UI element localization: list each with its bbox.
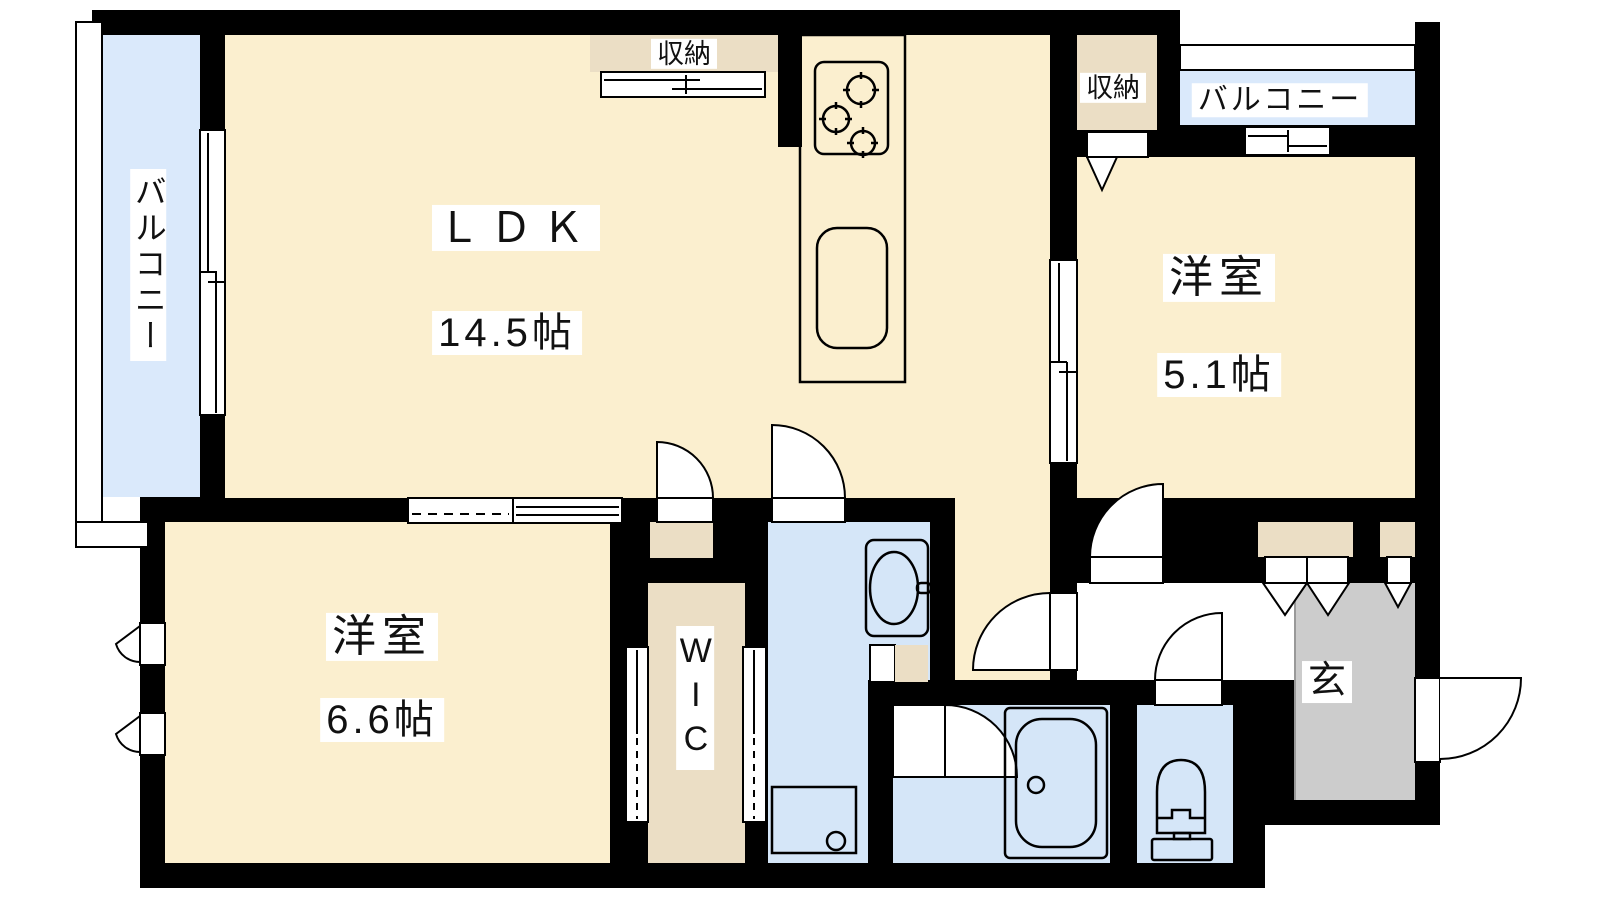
window-casement-1 <box>116 623 165 665</box>
shoe-storage-left-floor <box>1258 522 1353 557</box>
label-bedroom1-size: 5.1帖 <box>1157 353 1281 397</box>
window-casement-2 <box>116 713 165 755</box>
slider-wic-left <box>626 647 648 822</box>
label-storage-top: 収納 <box>651 39 717 69</box>
railing-left <box>76 22 102 522</box>
window-balcony-right <box>1245 127 1330 155</box>
label-bedroom1: 洋室 <box>1163 254 1275 302</box>
bedroom2-floor <box>165 522 610 863</box>
slider-wic-right <box>743 647 766 822</box>
label-wic: WIC <box>676 626 714 770</box>
label-bedroom2-size: 6.6帖 <box>320 698 444 742</box>
window-partition <box>1050 260 1077 463</box>
label-genkan: 玄 <box>1302 661 1352 703</box>
label-storage-right: 収納 <box>1080 73 1146 103</box>
floorplan-canvas: ＬＤＫ 14.5帖 洋室 5.1帖 洋室 6.6帖 WIC 玄 バルコニー バル… <box>0 0 1600 900</box>
kitchen-pillar-wall <box>778 33 802 147</box>
bedroom1-floor <box>1077 157 1415 498</box>
slider-bedroom2 <box>408 498 622 523</box>
door-entrance <box>1415 678 1521 762</box>
label-balcony-left: バルコニー <box>130 169 166 361</box>
railing-left-bottom <box>76 522 148 547</box>
slider-storage-top <box>601 72 765 97</box>
floor-plan-drawing <box>0 0 1600 900</box>
label-ldk-size: 14.5帖 <box>432 311 582 355</box>
shoe-storage-right-floor <box>1380 522 1415 557</box>
wic-vestibule-floor <box>650 522 713 558</box>
label-ldk: ＬＤＫ <box>432 205 600 251</box>
label-balcony-right: バルコニー <box>1192 83 1368 117</box>
label-bedroom2: 洋室 <box>326 613 438 661</box>
linen-cabinet <box>870 645 928 682</box>
window-ldk-left <box>200 130 225 415</box>
railing-top-right <box>1180 45 1415 70</box>
